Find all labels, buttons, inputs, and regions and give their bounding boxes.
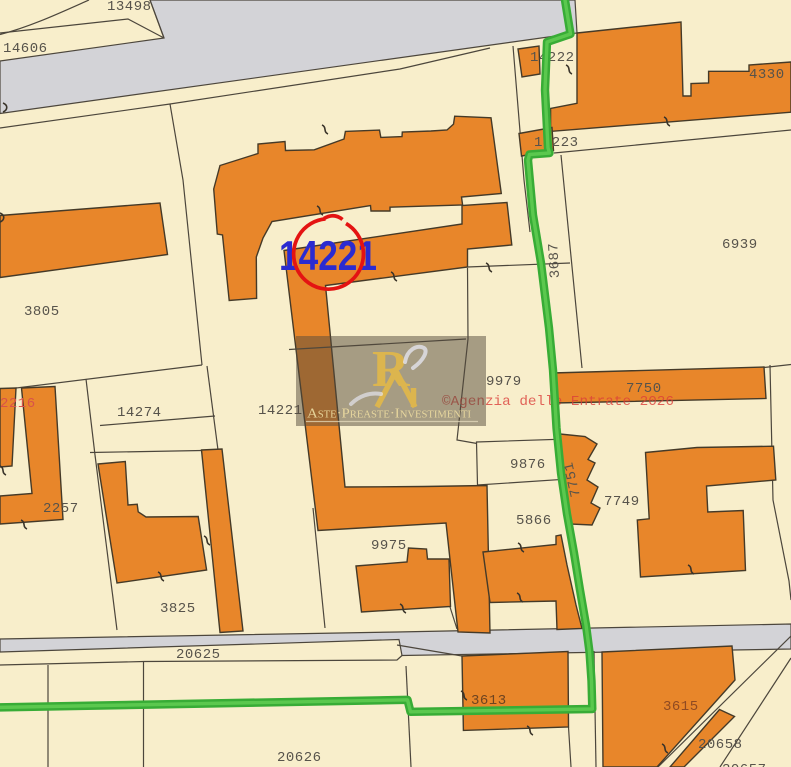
svg-text:3805: 3805 bbox=[24, 304, 60, 320]
svg-text:20657: 20657 bbox=[722, 762, 767, 767]
svg-text:14221: 14221 bbox=[258, 403, 303, 419]
svg-text:7749: 7749 bbox=[604, 494, 640, 510]
svg-text:20658: 20658 bbox=[698, 737, 743, 753]
svg-text:2257: 2257 bbox=[43, 501, 79, 517]
svg-text:14223: 14223 bbox=[534, 135, 579, 151]
svg-text:2216: 2216 bbox=[0, 396, 36, 412]
svg-text:14222: 14222 bbox=[530, 50, 575, 66]
svg-text:20625: 20625 bbox=[176, 647, 221, 663]
svg-text:3825: 3825 bbox=[160, 601, 196, 617]
svg-text:20626: 20626 bbox=[277, 750, 322, 766]
svg-text:9876: 9876 bbox=[510, 457, 546, 473]
svg-text:14606: 14606 bbox=[3, 41, 48, 57]
svg-text:5866: 5866 bbox=[516, 513, 552, 529]
svg-text:4330: 4330 bbox=[749, 67, 785, 83]
svg-text:3687: 3687 bbox=[546, 242, 564, 278]
svg-text:Aste·Preaste·Investimenti: Aste·Preaste·Investimenti bbox=[307, 407, 471, 422]
svg-text:3615: 3615 bbox=[663, 699, 699, 715]
svg-text:9979: 9979 bbox=[486, 374, 522, 390]
svg-text:9975: 9975 bbox=[371, 538, 407, 554]
svg-text:13498: 13498 bbox=[107, 0, 152, 15]
svg-text:14274: 14274 bbox=[117, 405, 162, 421]
svg-text:6939: 6939 bbox=[722, 237, 758, 253]
